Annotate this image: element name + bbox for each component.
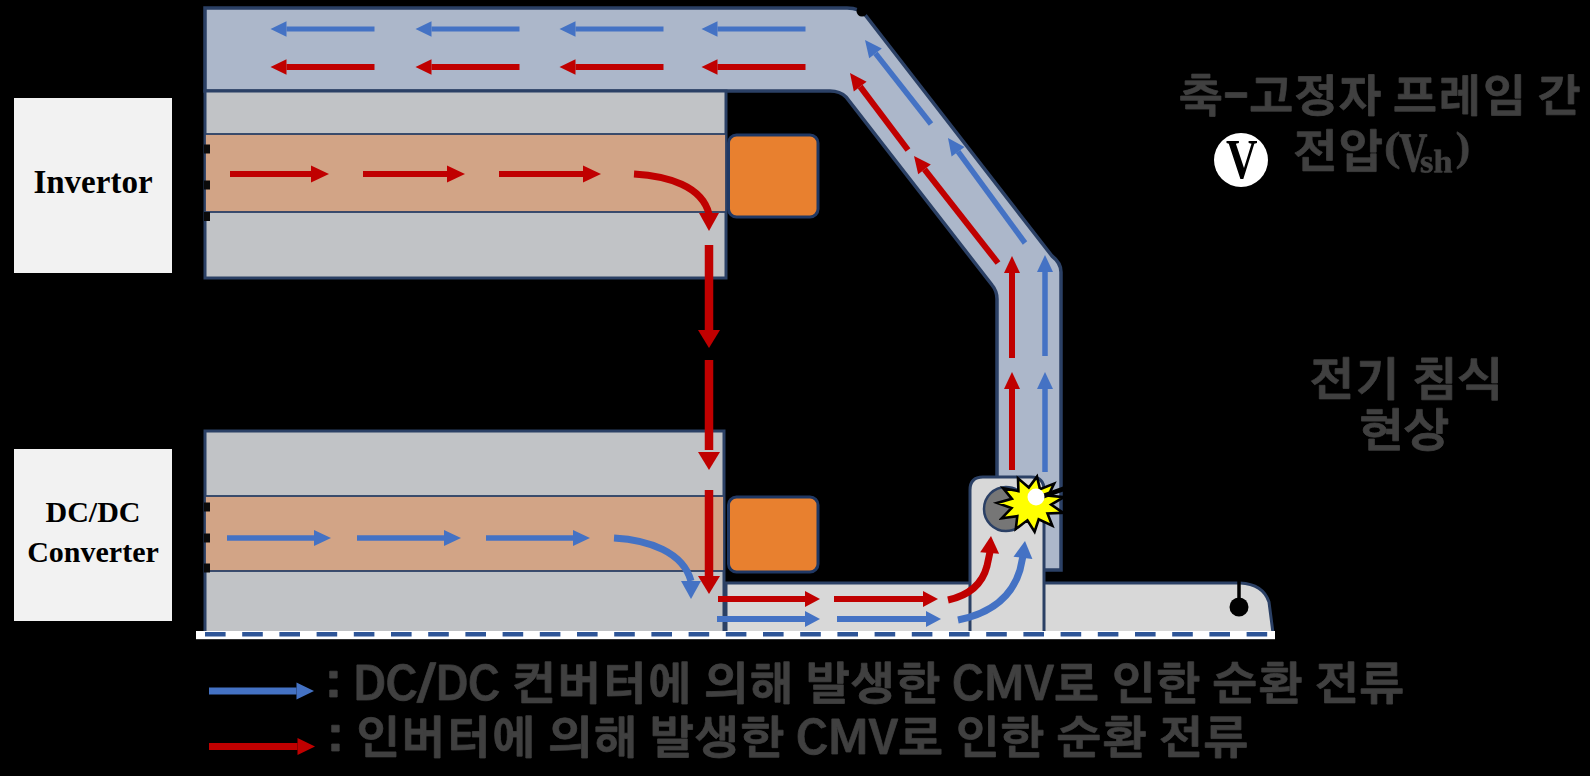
svg-text:Invertor: Invertor [33, 164, 152, 200]
svg-text:Converter: Converter [27, 535, 159, 568]
svg-text:DC/DC: DC/DC [46, 495, 141, 528]
